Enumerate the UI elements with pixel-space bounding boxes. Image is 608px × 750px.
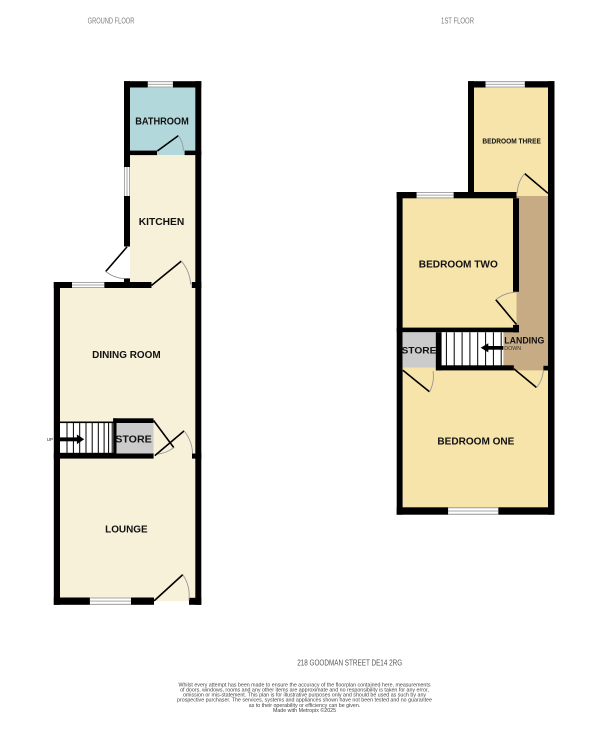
svg-text:GROUND FLOOR: GROUND FLOOR bbox=[88, 17, 135, 26]
svg-text:BATHROOM: BATHROOM bbox=[135, 116, 189, 128]
svg-text:Made with Metropix ©2025: Made with Metropix ©2025 bbox=[273, 707, 336, 714]
svg-text:UP: UP bbox=[47, 437, 53, 442]
svg-text:DOWN: DOWN bbox=[504, 346, 521, 352]
svg-text:218 GOODMAN STREET DE14 2RG: 218 GOODMAN STREET DE14 2RG bbox=[297, 658, 402, 667]
svg-text:LOUNGE: LOUNGE bbox=[105, 523, 148, 535]
svg-text:STORE: STORE bbox=[402, 345, 437, 356]
svg-text:KITCHEN: KITCHEN bbox=[139, 216, 185, 228]
svg-text:LANDING: LANDING bbox=[504, 336, 544, 346]
svg-text:STORE: STORE bbox=[115, 434, 152, 446]
svg-text:DINING ROOM: DINING ROOM bbox=[92, 349, 161, 361]
svg-text:1ST FLOOR: 1ST FLOOR bbox=[441, 17, 474, 26]
svg-text:BEDROOM ONE: BEDROOM ONE bbox=[437, 436, 514, 448]
svg-text:BEDROOM TWO: BEDROOM TWO bbox=[419, 259, 498, 271]
svg-text:BEDROOM THREE: BEDROOM THREE bbox=[482, 137, 541, 146]
